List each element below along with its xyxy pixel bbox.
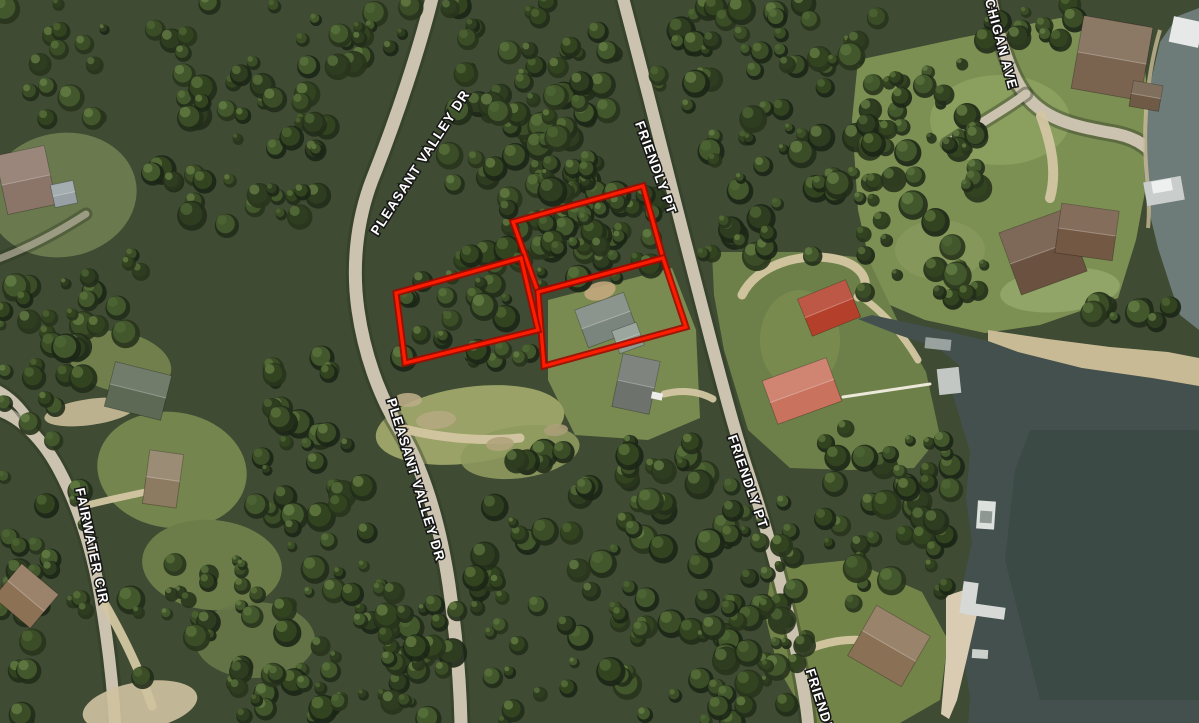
dock (937, 367, 962, 395)
house (142, 450, 183, 508)
dock (980, 511, 993, 524)
map-viewport[interactable]: PLEASANT VALLEY DRPLEASANT VALLEY DRFRIE… (0, 0, 1199, 723)
dock (972, 649, 989, 659)
aerial-basemap: PLEASANT VALLEY DRPLEASANT VALLEY DRFRIE… (0, 0, 1199, 723)
house (1055, 203, 1119, 261)
water-deep (1005, 430, 1199, 700)
house (1129, 81, 1163, 112)
house (50, 180, 77, 207)
